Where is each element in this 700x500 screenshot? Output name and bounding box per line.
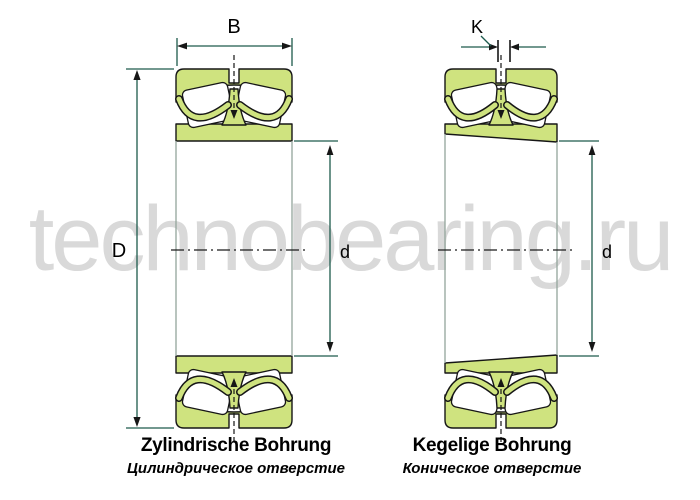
outer-diameter-label: D xyxy=(112,240,126,262)
left-bearing-cylindrical-bore-mirrored-half xyxy=(176,356,292,442)
left-bearing-title: Zylindrische Bohrung xyxy=(108,435,364,457)
right-bearing-subtitle: Коническое отверстие xyxy=(364,461,620,478)
k-dimension: K xyxy=(461,17,546,62)
right-bearing-title: Kegelige Bohrung xyxy=(364,435,620,457)
bore-dimension-right: d xyxy=(559,141,612,356)
bore-label-right: d xyxy=(602,242,612,262)
right-bearing-tapered-bore xyxy=(445,55,557,442)
left-bearing-subtitle: Цилиндрическое отверстие xyxy=(108,461,364,478)
left-bearing-cylindrical-bore xyxy=(176,55,292,442)
bore-dimension-left: d xyxy=(294,141,350,356)
right-bearing-caption: Kegelige Bohrung Коническое отверстие xyxy=(364,435,620,477)
outer-diameter-dimension: D xyxy=(112,69,174,428)
bore-label-left: d xyxy=(340,242,350,262)
right-bearing-tapered-bore-mirrored-half xyxy=(445,355,557,442)
left-bearing-caption: Zylindrische Bohrung Цилиндрическое отве… xyxy=(108,435,364,477)
bearing-drawing: technobearing.ru xyxy=(0,0,700,500)
b-label: B xyxy=(227,16,240,38)
k-label: K xyxy=(471,17,483,37)
bearing-diagram-svg: B D d K d xyxy=(0,0,700,500)
